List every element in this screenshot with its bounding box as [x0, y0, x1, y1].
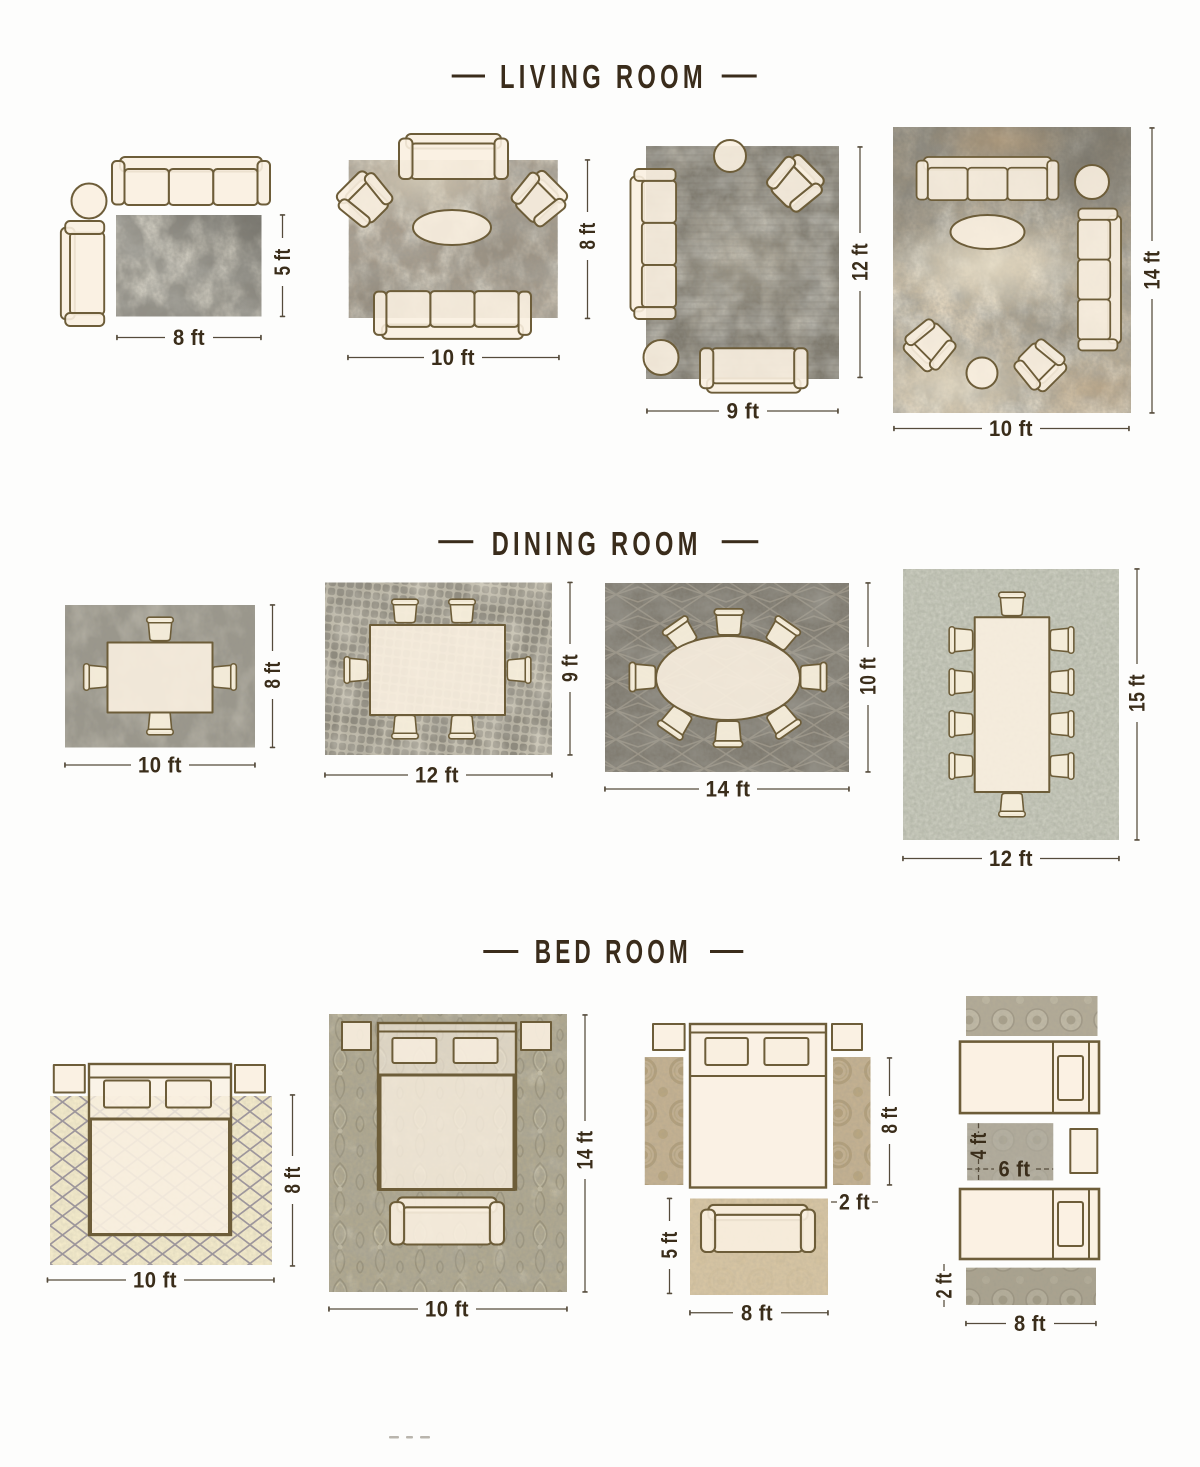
svg-text:14 ft: 14 ft: [706, 777, 751, 802]
svg-text:4 ft: 4 ft: [966, 1132, 991, 1159]
svg-text:8 ft: 8 ft: [575, 222, 600, 249]
svg-text:15 ft: 15 ft: [1125, 674, 1150, 712]
svg-text:DINING ROOM: DINING ROOM: [492, 525, 702, 562]
svg-text:10 ft: 10 ft: [989, 416, 1033, 441]
svg-text:BED ROOM: BED ROOM: [535, 933, 692, 970]
svg-text:10 ft: 10 ft: [133, 1268, 177, 1293]
svg-text:2 ft: 2 ft: [932, 1272, 957, 1298]
svg-text:8 ft: 8 ft: [877, 1106, 902, 1133]
svg-text:14 ft: 14 ft: [573, 1130, 598, 1169]
svg-text:LIVING ROOM: LIVING ROOM: [500, 58, 707, 95]
svg-text:9 ft: 9 ft: [727, 399, 760, 424]
svg-text:10 ft: 10 ft: [431, 345, 475, 370]
svg-text:8 ft: 8 ft: [260, 661, 285, 688]
svg-text:6 ft: 6 ft: [999, 1157, 1031, 1182]
svg-text:8 ft: 8 ft: [1014, 1311, 1046, 1336]
svg-text:5 ft: 5 ft: [657, 1231, 682, 1258]
svg-text:12 ft: 12 ft: [848, 243, 873, 281]
svg-text:8 ft: 8 ft: [173, 325, 205, 350]
svg-text:12 ft: 12 ft: [989, 846, 1033, 871]
svg-text:9 ft: 9 ft: [558, 654, 583, 682]
svg-text:10 ft: 10 ft: [856, 657, 881, 695]
svg-text:2 ft: 2 ft: [839, 1190, 870, 1215]
svg-text:5 ft: 5 ft: [270, 248, 295, 275]
svg-text:10 ft: 10 ft: [138, 753, 182, 778]
svg-text:10 ft: 10 ft: [425, 1297, 469, 1322]
svg-text:8 ft: 8 ft: [280, 1166, 305, 1193]
svg-text:14 ft: 14 ft: [1140, 250, 1165, 289]
svg-text:8 ft: 8 ft: [741, 1300, 773, 1325]
svg-text:12 ft: 12 ft: [415, 763, 459, 788]
